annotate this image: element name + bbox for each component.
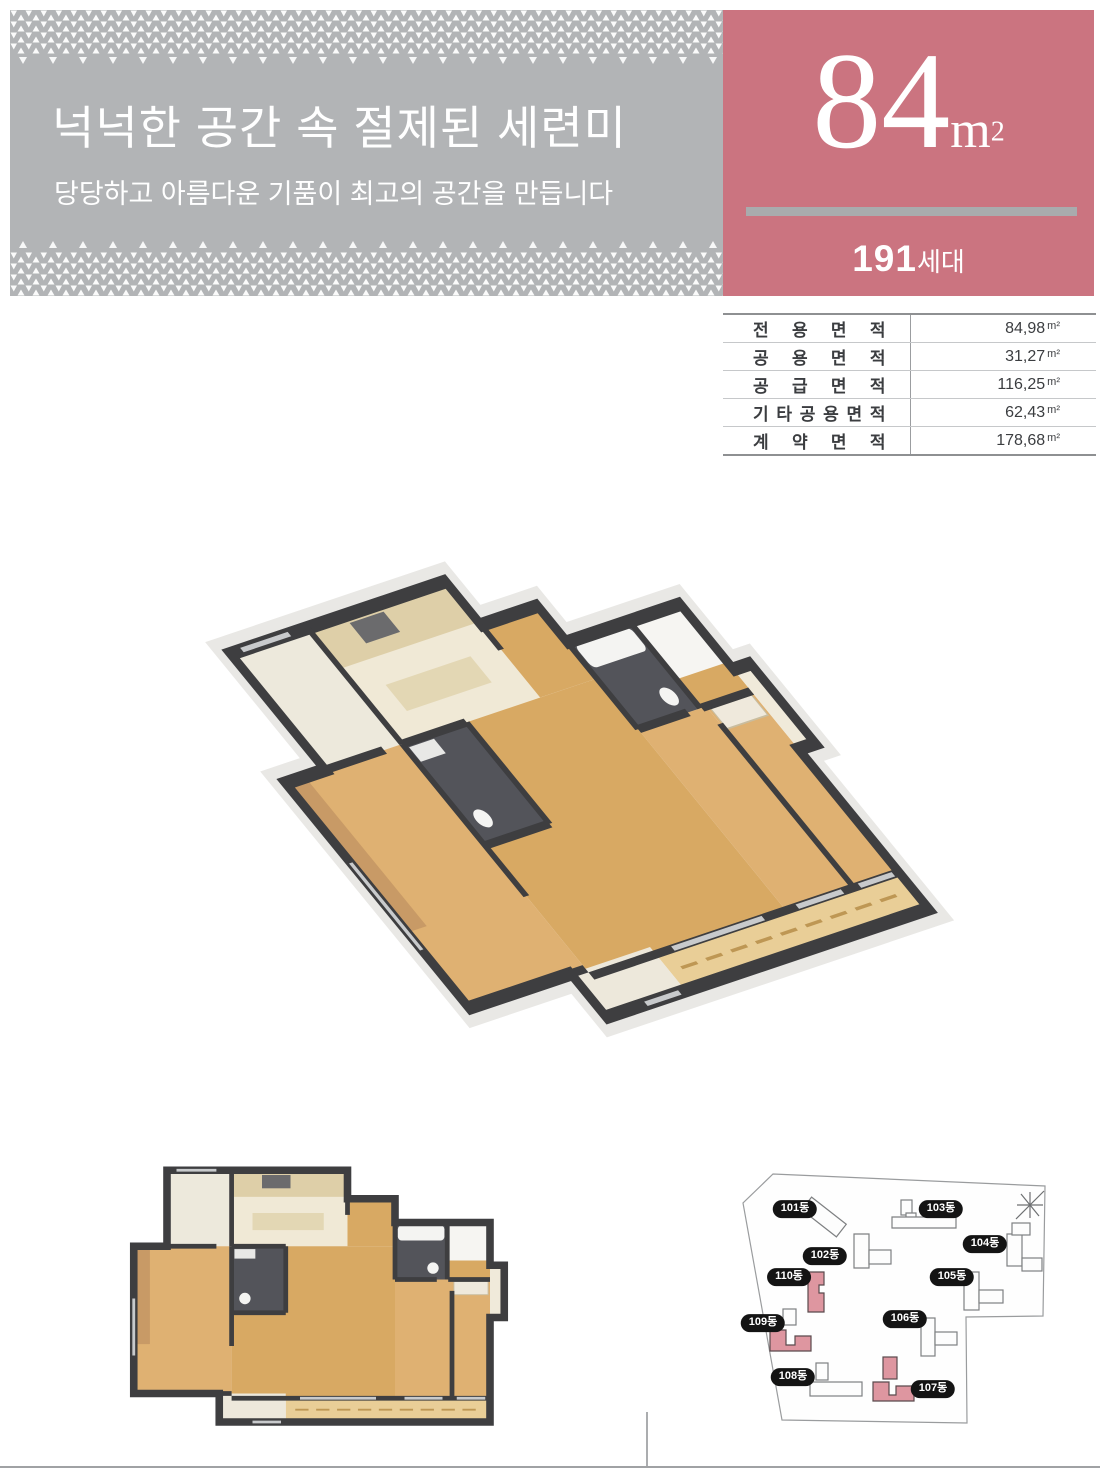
building-label-109: 109동: [741, 1314, 785, 1332]
unit-area-number: 84: [812, 24, 950, 177]
row-value-unit: m²: [1047, 376, 1060, 388]
unit-type-badge: 84m2 191세대: [723, 10, 1094, 296]
table-row: 전 용 면 적 84,98m²: [723, 315, 1096, 343]
row-value-unit: m²: [1047, 432, 1060, 444]
unit-area-exponent: 2: [991, 117, 1005, 148]
building-label-108: 108동: [771, 1368, 815, 1386]
unit-area: 84m2: [723, 32, 1094, 170]
area-spec-table: 전 용 면 적 84,98m² 공 용 면 적 31,27m² 공 급 면 적 …: [723, 313, 1096, 456]
building-label-107: 107동: [911, 1380, 955, 1398]
building-label-104: 104동: [963, 1235, 1007, 1253]
triangle-pattern-top: [10, 10, 723, 54]
footer-divider-vertical: [646, 1412, 648, 1466]
table-row: 기 타 공 용 면 적 62,43m²: [723, 399, 1096, 427]
households-number: 191: [852, 238, 917, 279]
triangle-pattern-bottom-sparse: [10, 238, 723, 252]
row-value: 178,68m²: [910, 427, 1097, 454]
headline-banner: 넉넉한 공간 속 절제된 세련미 당당하고 아름다운 기품이 최고의 공간을 만…: [10, 10, 723, 296]
table-row: 공 급 면 적 116,25m²: [723, 371, 1096, 399]
row-label: 공 용 면 적: [723, 344, 910, 369]
triangle-pattern-bottom: [10, 252, 723, 296]
building-label-101: 101동: [773, 1200, 817, 1218]
row-value-number: 116,25: [997, 376, 1045, 394]
row-value: 62,43m²: [910, 399, 1097, 426]
households: 191세대: [723, 238, 1094, 280]
building-label-102: 102동: [803, 1247, 847, 1265]
row-value-unit: m²: [1047, 348, 1060, 360]
row-value: 84,98m²: [910, 315, 1097, 342]
row-label: 계 약 면 적: [723, 428, 910, 453]
table-row: 공 용 면 적 31,27m²: [723, 343, 1096, 371]
badge-divider-bar: [746, 207, 1077, 216]
row-value-number: 178,68: [996, 432, 1045, 450]
row-value-unit: m²: [1047, 404, 1060, 416]
households-unit: 세대: [917, 247, 965, 277]
building-label-103: 103동: [919, 1200, 963, 1218]
row-value-number: 84,98: [1005, 320, 1045, 338]
table-row: 계 약 면 적 178,68m²: [723, 427, 1096, 454]
brochure-page: 넉넉한 공간 속 절제된 세련미 당당하고 아름다운 기품이 최고의 공간을 만…: [0, 0, 1100, 1476]
row-label: 기 타 공 용 면 적: [723, 400, 910, 425]
page-subtitle: 당당하고 아름다운 기품이 최고의 공간을 만듭니다: [54, 172, 613, 211]
floorplan-3d-rendering: [0, 470, 1100, 1130]
building-label-105: 105동: [930, 1268, 974, 1286]
footer-divider-horizontal: [0, 1466, 1100, 1468]
unit-area-unit: m: [950, 102, 990, 159]
site-plan: 101동 102동 103동 104동 105동 106동 107동 108동 …: [720, 1160, 1100, 1460]
row-label: 공 급 면 적: [723, 372, 910, 397]
floorplan-2d: [100, 1150, 520, 1450]
row-value-number: 31,27: [1005, 348, 1045, 366]
row-value-number: 62,43: [1005, 404, 1045, 422]
building-label-106: 106동: [883, 1310, 927, 1328]
building-label-110: 110동: [767, 1268, 811, 1286]
page-title: 넉넉한 공간 속 절제된 세련미: [52, 102, 627, 155]
row-value-unit: m²: [1047, 320, 1060, 332]
row-label: 전 용 면 적: [723, 316, 910, 341]
triangle-pattern-top-sparse: [10, 54, 723, 68]
row-value: 31,27m²: [910, 343, 1097, 370]
row-value: 116,25m²: [910, 371, 1097, 398]
